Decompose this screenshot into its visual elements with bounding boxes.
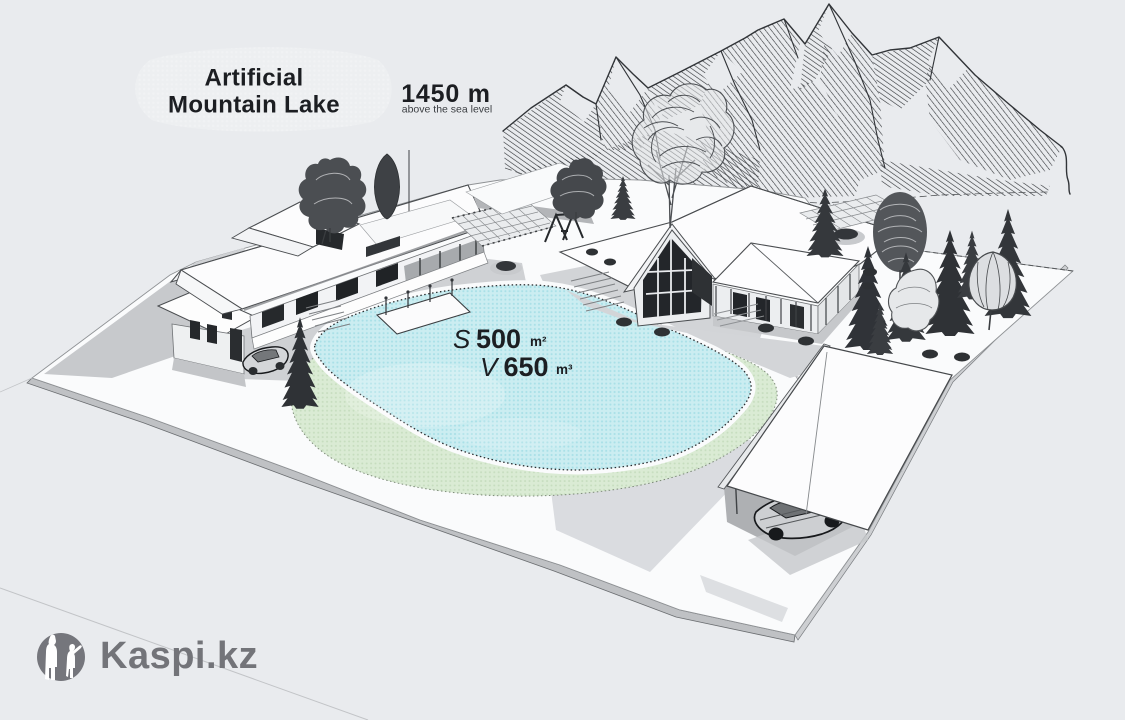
svg-text:above the sea level: above the sea level xyxy=(402,104,492,116)
svg-text:m³: m³ xyxy=(556,362,573,377)
svg-text:500: 500 xyxy=(476,324,521,354)
svg-text:Kaspi.kz: Kaspi.kz xyxy=(100,635,258,677)
svg-text:650: 650 xyxy=(504,352,549,382)
svg-text:m²: m² xyxy=(530,334,547,349)
svg-text:S: S xyxy=(453,324,471,354)
svg-text:Mountain Lake: Mountain Lake xyxy=(168,92,340,119)
svg-text:V: V xyxy=(480,352,500,382)
svg-text:Artificial: Artificial xyxy=(204,65,303,92)
